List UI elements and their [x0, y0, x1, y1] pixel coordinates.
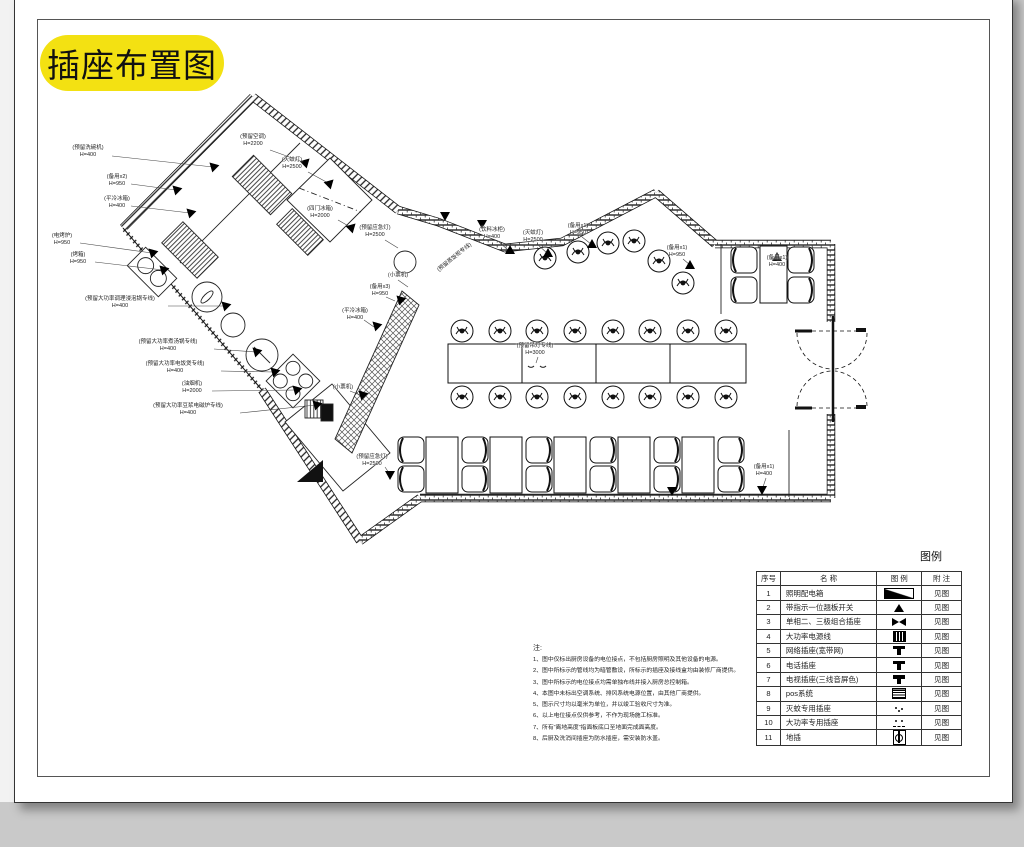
drawing-viewer: { "title": { "text": "插座布置图" }, "legend"… [0, 0, 1024, 847]
legend-header: 图 例 [877, 572, 922, 586]
phone-socket-icon [893, 661, 905, 670]
legend-row: 8pos系统见图 [757, 687, 962, 701]
notes-title: 注: [533, 643, 765, 653]
notes-list: 1、图中仅标出厨房设备的电位接点，不包括厨房照明及其他设备的电源。2、图中所标示… [533, 655, 765, 745]
rocker-switch-icon [894, 604, 904, 612]
pos-system-icon [892, 688, 906, 699]
kitchen-equipment [127, 155, 419, 482]
note-item: 3、图中所标示的电位接点均需单独布线并接入厨房总控制箱。 [533, 678, 765, 689]
leader-lines [80, 150, 779, 487]
drawing-title-highlight: 插座布置图 [40, 35, 224, 91]
floor-socket-icon [893, 730, 906, 745]
high-power-socket-icon [893, 719, 905, 727]
legend-row: 10大功率专用插座见图 [757, 715, 962, 729]
legend-row: 4大功率电源线见图 [757, 629, 962, 643]
legend-row: 6电话插座见图 [757, 658, 962, 672]
legend-table: 序号名 称图 例附 注1照明配电箱见图2带指示一位翘板开关见图3单相二、三极组合… [756, 571, 962, 746]
legend: 图例 序号名 称图 例附 注1照明配电箱见图2带指示一位翘板开关见图3单相二、三… [756, 548, 964, 746]
legend-row: 2带指示一位翘板开关见图 [757, 600, 962, 614]
note-item: 2、图中所标示的管线均为暗管敷设，所标示的插座及接线盒均由装修厂商提供。 [533, 666, 765, 677]
high-power-line-icon [893, 631, 906, 642]
note-item: 7、所有“离地高度”指面板底口至地面完成面高度。 [533, 723, 765, 734]
combo-socket-icon [892, 618, 906, 626]
dining-furniture [398, 230, 814, 493]
legend-row: 1照明配电箱见图 [757, 586, 962, 600]
legend-header: 名 称 [780, 572, 876, 586]
legend-row: 9灭蚊专用插座见图 [757, 701, 962, 715]
legend-row: 5网络插座(宽带网)见图 [757, 643, 962, 657]
note-item: 4、本图中未标出空调系统、排风系统电源位置，由其他厂商提供。 [533, 689, 765, 700]
page-title: 插座布置图 [47, 39, 217, 87]
legend-header: 序号 [757, 572, 781, 586]
note-item: 5、图示尺寸均以毫米为单位，并以竣工验收尺寸为准。 [533, 700, 765, 711]
legend-row: 3单相二、三极组合插座见图 [757, 615, 962, 629]
legend-row: 7电视插座(三线音屏色)见图 [757, 672, 962, 686]
note-item: 8、后厨及洗消间插座为防水插座，需安装防水盖。 [533, 734, 765, 745]
legend-title: 图例 [756, 548, 964, 564]
notes-block: 注: 1、图中仅标出厨房设备的电位接点，不包括厨房照明及其他设备的电源。2、图中… [533, 643, 765, 745]
note-item: 6、以上电位接点仅供参考，不作为现场施工标准。 [533, 711, 765, 722]
note-item: 1、图中仅标出厨房设备的电位接点，不包括厨房照明及其他设备的电源。 [533, 655, 765, 666]
mosquito-socket-icon [894, 705, 904, 712]
tv-socket-icon [893, 675, 905, 684]
entrance-doors [795, 316, 868, 422]
legend-header: 附 注 [922, 572, 962, 586]
distribution-box-icon [884, 588, 914, 599]
network-socket-icon [893, 646, 905, 655]
legend-row: 11地插见图 [757, 730, 962, 746]
